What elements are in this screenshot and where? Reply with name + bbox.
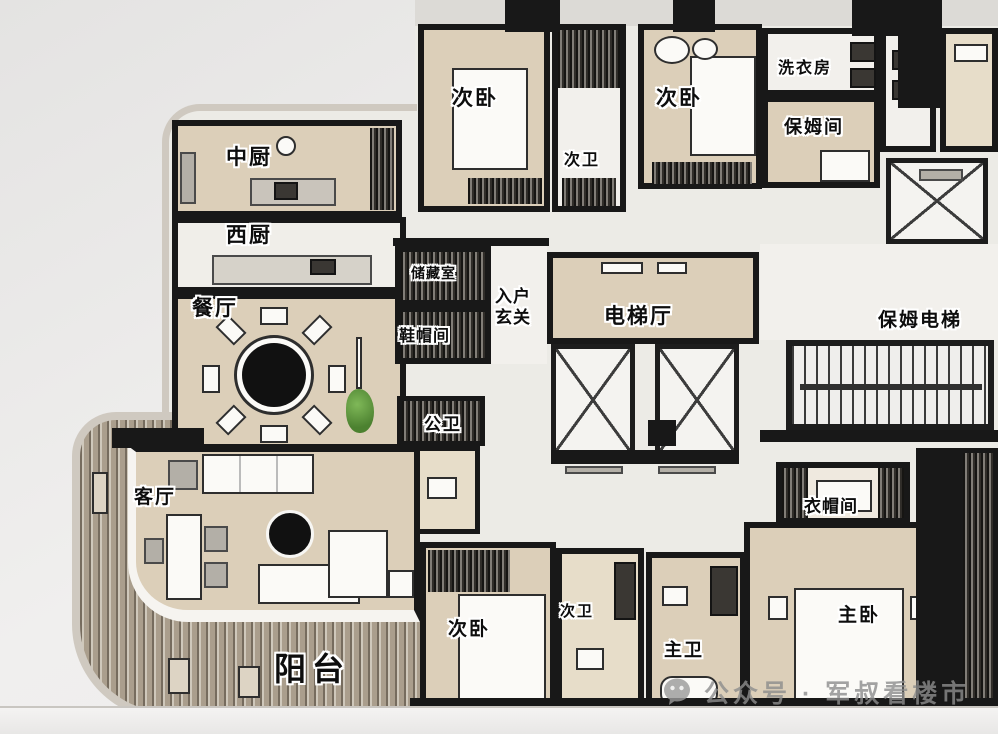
label-service-elevator: 保姆电梯 [878,305,962,332]
label-bedroom-bottom: 次卧 [448,614,490,641]
label-balcony: 阳台 [274,644,350,690]
label-storage-room: 储藏室 [411,263,456,283]
shower [614,562,636,620]
toilet [662,586,688,606]
label-dining-room: 餐厅 [192,292,238,322]
balcony-planter [168,658,190,694]
service-elevator-shaft [886,158,988,244]
rug [468,178,542,204]
sofa-divider [239,456,241,492]
side-table [388,570,414,598]
room-elevator-hall [547,252,759,344]
pillow [654,36,690,64]
label-bath-bottom: 次卫 [560,600,594,621]
stove [274,182,298,200]
floor-plan: 次卧 次卫 次卧 洗衣房 保姆间 中厨 西厨 餐厅 储藏室 入户玄关 鞋帽间 电… [0,0,998,734]
elevator-vent [565,466,623,474]
coffee-table [266,510,314,558]
corner-sofa [328,530,388,598]
dining-chair [328,365,346,393]
wall-segment [505,0,560,32]
wall-segment [916,448,958,710]
cabinet [370,128,394,210]
wechat-icon [662,677,694,707]
toilet [576,648,604,670]
label-master-bedroom: 主卧 [838,600,880,627]
balcony-planter [92,472,108,514]
label-entry-foyer: 入户玄关 [492,286,534,329]
wall-segment [648,420,676,446]
console [601,262,643,274]
kitchen-island [212,255,372,285]
sofa [202,454,314,494]
chair [204,562,228,588]
nightstand [768,596,788,620]
cabinet [180,152,196,204]
room-western-kitchen [172,217,406,293]
dryer-machine [850,68,876,88]
label-living-room: 客厅 [134,482,176,509]
label-laundry: 洗衣房 [778,54,832,78]
stair-rail [800,384,982,390]
chair [204,526,228,552]
wall-segment [760,430,998,442]
dining-chair [215,404,246,435]
ceiling-light [276,136,296,156]
elevator-vent [658,466,716,474]
closet-shelves [878,468,904,518]
label-chinese-kitchen: 中厨 [226,141,272,171]
rug [428,550,510,592]
sink [310,259,336,275]
label-cloak-room: 衣帽间 [804,492,858,517]
rug [652,162,752,184]
label-elevator-hall: 电梯厅 [604,300,673,330]
label-western-kitchen: 西厨 [226,219,272,249]
wall-segment [898,0,942,108]
console [657,262,687,274]
plant [346,389,374,433]
watermark-text: 公众号 · 军叔看楼市 [704,674,970,710]
room-bedroom-top-left [418,24,550,212]
room-living [128,446,420,622]
exterior-ground [0,706,998,734]
chair [144,538,164,564]
wall-segment [393,238,549,246]
label-public-bath: 公卫 [424,410,462,435]
elevator-vent [919,169,963,181]
label-bedroom-top-mid: 次卧 [656,82,702,112]
room-bath-bottom [556,548,644,712]
dining-chair [301,314,332,345]
dining-chair [260,307,288,325]
shower [710,566,738,616]
wardrobe [958,448,998,710]
candle-stand [356,337,362,389]
bathtub [954,44,988,62]
staircase [786,340,994,430]
label-shoe-room: 鞋帽间 [399,322,450,346]
wall-segment [551,450,739,464]
balcony-planter [238,666,260,698]
bed [820,150,870,182]
room-bath-top-right-b [940,28,998,152]
wall-segment [673,0,715,32]
bed [458,594,546,702]
elevator-shaft [551,344,635,456]
pillow [692,38,718,60]
room-nanny [762,96,880,188]
watermark: 公众号 · 军叔看楼市 [662,674,970,710]
label-master-bath: 主卫 [664,636,704,662]
long-table [166,514,202,600]
room-bath-top [552,24,626,212]
dining-table-top [242,343,306,407]
label-bath-top: 次卫 [564,146,600,170]
rug [562,178,616,206]
closet-shelves [558,30,620,88]
dining-chair [260,425,288,443]
room-chinese-kitchen [172,120,402,217]
dining-chair [202,365,220,393]
toilet [427,477,457,499]
wall-segment [112,428,204,448]
washing-machine [850,42,876,62]
label-nanny-room: 保姆间 [784,113,844,139]
label-bedroom-top-left: 次卧 [452,82,498,112]
sofa-divider [276,456,278,492]
dining-chair [301,404,332,435]
